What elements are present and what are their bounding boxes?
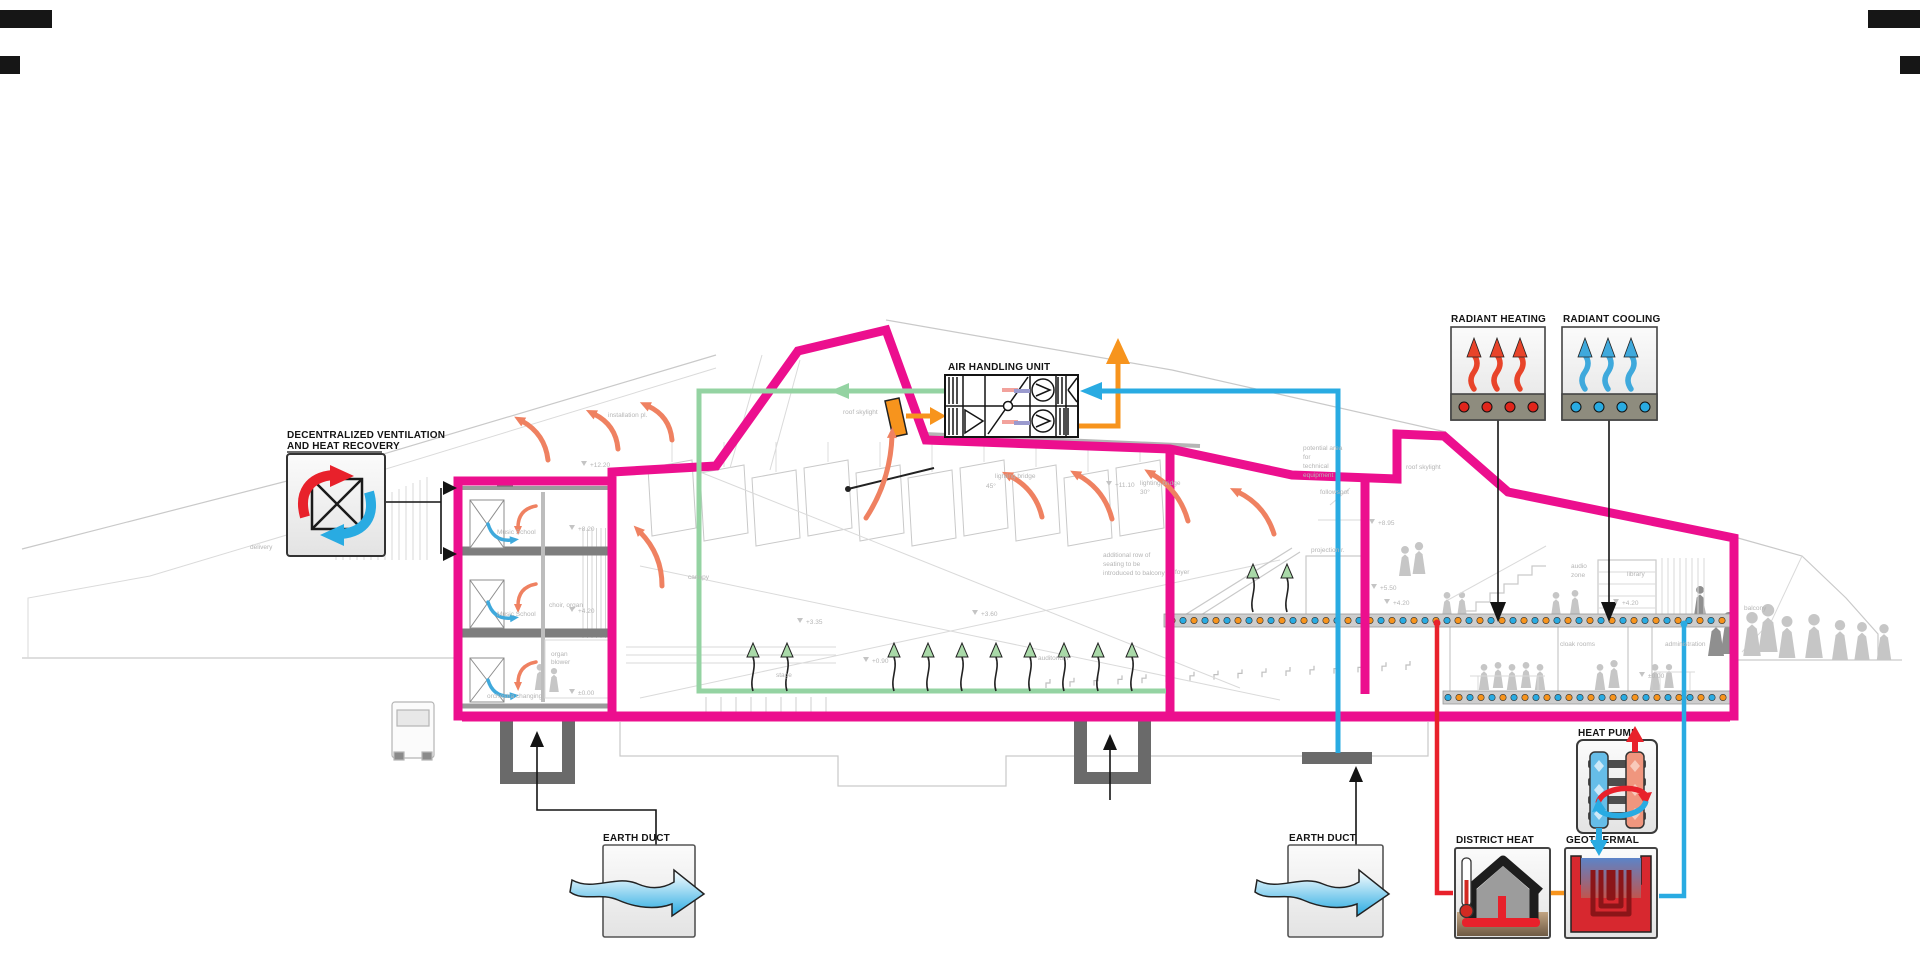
person-silhouette xyxy=(1877,624,1891,660)
person-silhouette xyxy=(1854,622,1869,660)
radiant-pipe-dot xyxy=(1598,617,1604,623)
floor-supply-arrow xyxy=(1126,643,1138,691)
earth-duct-left-label: EARTH DUCT xyxy=(603,833,670,844)
drawing-annotation: auditorium xyxy=(1038,655,1068,662)
radiant-pipe-dot xyxy=(1631,617,1637,623)
drawing-annotation: Music School xyxy=(497,611,536,618)
radiant-pipe-dot xyxy=(1576,617,1582,623)
radiant-pipe-dot xyxy=(1246,617,1252,623)
radiant-pipe-dot xyxy=(1312,617,1318,623)
facade-exhaust-arrow xyxy=(514,662,536,691)
corner-marks xyxy=(0,10,1920,74)
air-handling-unit-label: AIR HANDLING UNIT xyxy=(948,362,1050,373)
drawing-annotation: audio xyxy=(1571,563,1587,570)
drawing-annotation: for xyxy=(1303,454,1311,461)
radiant-pipe-dot xyxy=(1554,617,1560,623)
radiant-pipe-dot xyxy=(1378,617,1384,623)
floor-supply-arrow xyxy=(922,643,934,691)
radiant-pipe-dot xyxy=(1533,694,1539,700)
person-silhouette xyxy=(1743,612,1761,656)
radiant-pipe-dot xyxy=(1510,617,1516,623)
radiant-pipe-dot xyxy=(1632,694,1638,700)
radiant-pipe-dot xyxy=(1687,694,1693,700)
floor-supply-arrow xyxy=(1281,564,1293,612)
radiant-pipe-dot xyxy=(1610,694,1616,700)
drawing-annotation: followspot xyxy=(1320,489,1349,496)
seat-glyph xyxy=(1190,672,1194,681)
canopy-panel xyxy=(960,460,1008,536)
seat-glyph xyxy=(1382,662,1386,671)
person-silhouette xyxy=(1570,590,1580,616)
radiant-pipe-dot xyxy=(1577,694,1583,700)
drawing-annotation: ±0.00 xyxy=(1648,673,1665,680)
earth-duct-left: EARTH DUCT xyxy=(570,833,704,937)
radiant-pipe-dot xyxy=(1653,617,1659,623)
drawing-annotation: balcony xyxy=(1744,605,1767,612)
drawing-annotation: +8.20 xyxy=(578,526,595,533)
level-marker-icon xyxy=(863,657,869,662)
drawing-annotation: seating to be xyxy=(1103,561,1141,568)
air-handling-unit-icon xyxy=(945,375,1078,437)
radiant-pipe-dot xyxy=(1445,694,1451,700)
earth-duct-right-label: EARTH DUCT xyxy=(1289,833,1356,844)
skylight-flap-icon xyxy=(885,398,907,437)
radiant-pipe-dot xyxy=(1511,694,1517,700)
person-silhouette xyxy=(1521,662,1531,688)
radiant-pipe-dot xyxy=(1389,617,1395,623)
person-silhouette xyxy=(1832,620,1848,660)
floor-supply-arrow xyxy=(990,643,1002,691)
seat-glyph xyxy=(1142,674,1146,683)
radiant-pipe-dot xyxy=(1224,617,1230,623)
facade-exhaust-arrow xyxy=(514,584,536,613)
radiant-pipe-dot xyxy=(1301,617,1307,623)
warm-air-arrow xyxy=(1230,488,1274,534)
district-heat: DISTRICT HEAT xyxy=(1455,835,1550,938)
radiant-pipe-dot xyxy=(1180,617,1186,623)
drawing-annotation: equipment xyxy=(1303,472,1334,479)
drawing-annotation: +4.20 xyxy=(1622,600,1639,607)
exhaust-up-arrowhead xyxy=(1106,338,1130,364)
floor-supply-arrow xyxy=(1247,564,1259,612)
radiant-pipe-dot xyxy=(1500,694,1506,700)
earth-duct-right: EARTH DUCT xyxy=(1255,833,1389,937)
corner-mark xyxy=(1868,10,1920,28)
radiant-pipe-dot xyxy=(1675,617,1681,623)
level-marker-icon xyxy=(1639,672,1645,677)
drawing-annotation: 45° xyxy=(986,482,996,490)
diagram-canvas: DECENTRALIZED VENTILATION AND HEAT RECOV… xyxy=(0,0,1920,968)
drawing-annotation: additional row of xyxy=(1103,552,1151,559)
radiant-pipe-dot xyxy=(1455,617,1461,623)
geothermal: GEOTHERMAL xyxy=(1565,835,1657,938)
radiant-pipe-dot xyxy=(1444,617,1450,623)
radiant-pipe-dot xyxy=(1257,617,1263,623)
radiant-pipe-dot xyxy=(1279,617,1285,623)
drawing-annotation: installation pl. xyxy=(608,412,648,419)
person-silhouette xyxy=(1595,664,1605,690)
delivery-truck xyxy=(392,702,434,760)
radiant-pipe-dot xyxy=(1456,694,1462,700)
level-marker-icon xyxy=(569,525,575,530)
person-silhouette xyxy=(1399,546,1411,576)
radiant-pipe-dot xyxy=(1654,694,1660,700)
canopy-panel xyxy=(700,465,748,541)
drawing-annotation: 30° xyxy=(1140,488,1150,496)
drawing-annotation: roof skylight xyxy=(1406,464,1441,471)
drawing-annotation: stage xyxy=(776,672,792,679)
seat-glyph xyxy=(1406,661,1410,670)
drawing-annotation: projection r. xyxy=(1311,547,1345,554)
drawing-annotation: organ xyxy=(551,651,568,658)
seat-glyph xyxy=(1046,679,1050,688)
drawing-annotation: Music School xyxy=(497,529,536,536)
radiant-pipe-dot xyxy=(1422,617,1428,623)
person-silhouette xyxy=(549,668,559,692)
radiant-pipe-dot xyxy=(1268,617,1274,623)
level-marker-icon xyxy=(1369,519,1375,524)
level-marker-icon xyxy=(972,610,978,615)
radiant-pipe-dot xyxy=(1664,617,1670,623)
warm-air-arrow xyxy=(640,402,672,440)
radiant-pipe-dot xyxy=(1477,617,1483,623)
radiant-pipe-dot xyxy=(1544,694,1550,700)
decentralized-ventilation-label: DECENTRALIZED VENTILATION xyxy=(287,430,445,441)
drawing-annotation: lighting bridge xyxy=(1140,480,1181,487)
corner-mark xyxy=(0,10,52,28)
canopy-panel xyxy=(1116,460,1164,536)
geothermal-icon xyxy=(1571,856,1651,932)
level-marker-icon xyxy=(1371,584,1377,589)
radiant-pipe-dot xyxy=(1467,694,1473,700)
drawing-annotation: ±0.00 xyxy=(578,690,595,697)
radiant-pipe-dot xyxy=(1323,617,1329,623)
seat-glyph xyxy=(1238,669,1242,678)
radiant-pipe-dot xyxy=(1720,694,1726,700)
radiant-pipe-dot xyxy=(1191,617,1197,623)
radiant-pipe-dot xyxy=(1599,694,1605,700)
radiant-pipe-dot xyxy=(1697,617,1703,623)
drawing-annotation: +3.60 xyxy=(981,611,998,618)
person-silhouette xyxy=(1507,664,1517,690)
seat-glyph xyxy=(1310,666,1314,675)
floor-supply-arrow xyxy=(1024,643,1036,691)
radiant-pipe-dot xyxy=(1488,617,1494,623)
radiant-pipe-dot xyxy=(1400,617,1406,623)
radiant-pipe-dot xyxy=(1698,694,1704,700)
energy-concept-diagram: DECENTRALIZED VENTILATION AND HEAT RECOV… xyxy=(0,0,1920,968)
canopy-panel xyxy=(752,470,800,546)
radiant-pipe-dot xyxy=(1202,617,1208,623)
person-silhouette xyxy=(1493,662,1503,688)
floor-supply-arrow xyxy=(888,643,900,691)
drawing-annotation: orchestra changing xyxy=(487,693,543,700)
level-marker-icon xyxy=(581,461,587,466)
radiant-pipe-dot xyxy=(1621,694,1627,700)
person-silhouette xyxy=(1608,660,1619,688)
drawing-annotation: +5.50 xyxy=(1380,585,1397,592)
radiant-pipe-dot xyxy=(1466,617,1472,623)
drawing-annotation: +3.35 xyxy=(806,619,823,626)
drawing-annotation: choir, organ xyxy=(549,602,583,609)
drawing-annotation: foyer xyxy=(1175,569,1190,576)
person-silhouette xyxy=(1779,616,1796,658)
drawing-annotation: roof skylight xyxy=(843,409,878,416)
radiant-pipe-dot xyxy=(1709,694,1715,700)
drawing-annotation: +4.20 xyxy=(578,608,595,615)
radiant-pipe-dot xyxy=(1665,694,1671,700)
person-silhouette xyxy=(1479,664,1489,690)
radiant-pipe-dot xyxy=(1587,617,1593,623)
drawing-annotation: canopy xyxy=(688,574,710,581)
drawing-annotation: administration xyxy=(1665,641,1706,648)
radiant-pipe-dot xyxy=(1532,617,1538,623)
drawing-annotation: lighting bridge xyxy=(995,473,1036,480)
canopy-panel xyxy=(908,470,956,546)
drawing-annotation: +11.10 xyxy=(1115,482,1135,489)
seat-glyph xyxy=(1262,668,1266,677)
floor-supply-arrow xyxy=(747,643,759,691)
radiant-pipe-dot xyxy=(1620,617,1626,623)
person-silhouette xyxy=(1664,664,1674,688)
drawing-annotation: +4.20 xyxy=(1393,600,1410,607)
earth-duct-shafts xyxy=(500,718,1372,784)
district-heat-label: DISTRICT HEAT xyxy=(1456,835,1534,846)
person-silhouette xyxy=(1805,614,1823,658)
drawing-annotation: cloak rooms xyxy=(1560,641,1596,648)
heat-recovery-unit: DECENTRALIZED VENTILATION AND HEAT RECOV… xyxy=(287,430,445,556)
drawing-annotation: introduced to balcony xyxy=(1103,570,1166,577)
corner-mark xyxy=(1900,56,1920,74)
decentralized-ventilation-label-2: AND HEAT RECOVERY xyxy=(287,441,400,452)
drawing-annotation: technical xyxy=(1303,463,1329,470)
radiant-pipe-dot xyxy=(1566,694,1572,700)
radiant-cooling-label: RADIANT COOLING xyxy=(1563,314,1660,325)
person-silhouette xyxy=(1413,542,1426,574)
radiant-pipe-dot xyxy=(1489,694,1495,700)
person-silhouette xyxy=(1535,664,1545,690)
radiant-pipe-dot xyxy=(1213,617,1219,623)
drawing-annotation: delivery xyxy=(250,544,273,551)
radiant-pipe-dot xyxy=(1643,694,1649,700)
level-marker-icon xyxy=(569,689,575,694)
supply-air-arrowhead xyxy=(830,383,849,399)
radiant-pipe-dot xyxy=(1708,617,1714,623)
radiant-pipe-dot xyxy=(1478,694,1484,700)
seat-glyph xyxy=(1070,678,1074,687)
floor-supply-arrow xyxy=(1058,643,1070,691)
drawing-annotation: zone xyxy=(1571,572,1585,579)
level-marker-icon xyxy=(797,618,803,623)
radiant-pipe-dot xyxy=(1345,617,1351,623)
radiant-pipe-dot xyxy=(1290,617,1296,623)
radiant-heating-label: RADIANT HEATING xyxy=(1451,314,1546,325)
radiant-pipe-dot xyxy=(1565,617,1571,623)
drawing-annotation: potential area xyxy=(1303,445,1343,452)
drawing-annotation: +12.20 xyxy=(590,462,610,469)
floor-supply-arrow xyxy=(956,643,968,691)
air-handling-unit: AIR HANDLING UNIT xyxy=(945,362,1078,437)
radiant-pipe-dot xyxy=(1588,694,1594,700)
drawing-annotation: library xyxy=(1627,571,1645,578)
seat-glyph xyxy=(1118,675,1122,684)
warm-air-arrow xyxy=(514,417,548,460)
seat-glyph xyxy=(1286,667,1290,676)
radiant-pipe-dot xyxy=(1676,694,1682,700)
drawing-annotation: +0.90 xyxy=(872,658,889,665)
canopy-panel xyxy=(804,460,852,536)
radiant-pipe-dot xyxy=(1719,617,1725,623)
corner-mark xyxy=(0,56,20,74)
radiant-pipe-dot xyxy=(1499,617,1505,623)
level-marker-icon xyxy=(1384,599,1390,604)
drawing-annotation: blower xyxy=(551,659,571,666)
drawing-annotation: +8.95 xyxy=(1378,520,1395,527)
radiant-pipe-dot xyxy=(1555,694,1561,700)
radiant-pipe-dot xyxy=(1543,617,1549,623)
radiant-pipe-dot xyxy=(1642,617,1648,623)
radiant-pipe-dot xyxy=(1235,617,1241,623)
radiant-pipe-dot xyxy=(1521,617,1527,623)
radiant-pipe-dot xyxy=(1411,617,1417,623)
radiant-pipe-dot xyxy=(1522,694,1528,700)
